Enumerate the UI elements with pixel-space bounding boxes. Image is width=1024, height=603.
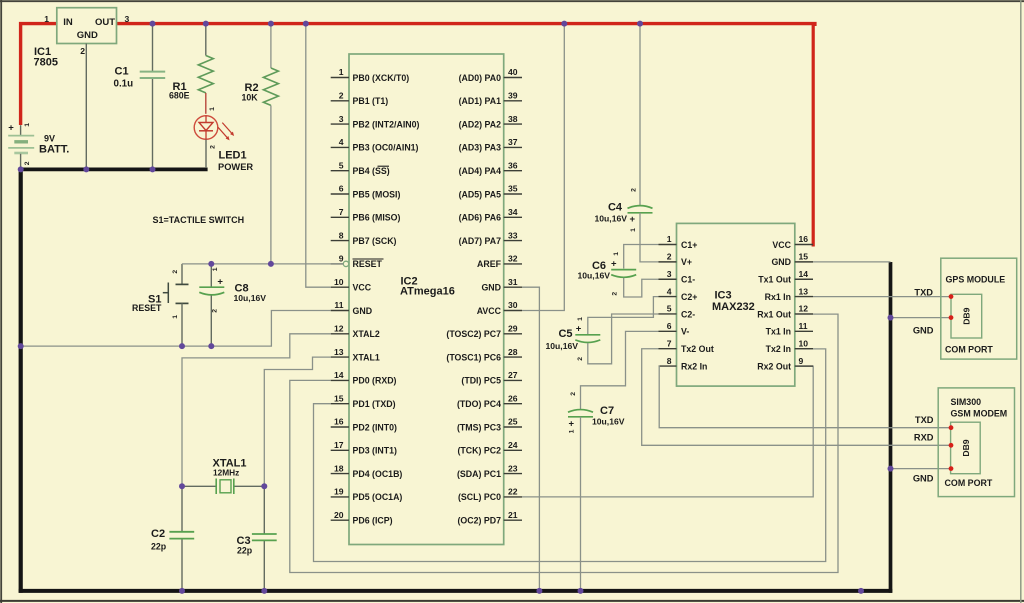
svg-text:10: 10: [334, 277, 344, 287]
svg-text:(AD5) PA5: (AD5) PA5: [459, 189, 501, 199]
svg-text:V-: V-: [681, 327, 689, 337]
svg-text:PD0 (RXD): PD0 (RXD): [353, 376, 397, 386]
svg-text:PB0 (XCK/T0): PB0 (XCK/T0): [353, 73, 410, 83]
svg-text:1: 1: [209, 107, 216, 111]
svg-text:18: 18: [334, 463, 344, 473]
svg-text:13: 13: [799, 286, 809, 296]
svg-text:PD3 (INT1): PD3 (INT1): [353, 446, 398, 456]
svg-text:(TCK) PC2: (TCK) PC2: [458, 446, 502, 456]
svg-text:9: 9: [799, 356, 804, 366]
svg-text:22: 22: [508, 487, 518, 497]
svg-text:C1: C1: [115, 66, 129, 78]
svg-text:0.1u: 0.1u: [114, 79, 134, 90]
svg-text:6: 6: [339, 184, 344, 194]
svg-text:36: 36: [508, 160, 518, 170]
svg-text:10u,16V: 10u,16V: [546, 341, 579, 351]
svg-text:2: 2: [80, 46, 85, 56]
svg-text:PD4 (OC1B): PD4 (OC1B): [353, 469, 403, 479]
svg-text:PB6 (MISO): PB6 (MISO): [353, 213, 401, 223]
svg-text:C5: C5: [558, 328, 572, 340]
svg-text:+: +: [630, 214, 636, 225]
svg-text:S1=TACTILE SWITCH: S1=TACTILE SWITCH: [153, 215, 245, 225]
svg-text:16: 16: [334, 417, 344, 427]
svg-text:17: 17: [334, 440, 344, 450]
svg-text:23: 23: [508, 463, 518, 473]
svg-text:7: 7: [667, 338, 672, 348]
svg-text:SIM300: SIM300: [951, 397, 982, 407]
svg-text:GPS MODULE: GPS MODULE: [946, 274, 1006, 284]
svg-text:DB9: DB9: [961, 439, 971, 456]
svg-text:1: 1: [577, 317, 584, 321]
svg-text:GSM MODEM: GSM MODEM: [951, 409, 1008, 419]
svg-text:27: 27: [508, 370, 518, 380]
svg-text:1: 1: [172, 315, 179, 319]
svg-text:Tx2 Out: Tx2 Out: [681, 344, 714, 354]
svg-text:30: 30: [508, 300, 518, 310]
svg-text:2: 2: [612, 292, 619, 296]
svg-text:GND: GND: [913, 326, 934, 336]
svg-text:9: 9: [339, 254, 344, 264]
svg-text:5: 5: [667, 304, 672, 314]
svg-text:10u,16V: 10u,16V: [578, 271, 611, 281]
svg-text:14: 14: [799, 269, 809, 279]
svg-text:RESET: RESET: [353, 259, 383, 269]
svg-text:Rx1 In: Rx1 In: [765, 292, 791, 302]
svg-text:24: 24: [508, 440, 518, 450]
svg-text:40: 40: [508, 67, 518, 77]
svg-text:38: 38: [508, 114, 518, 124]
svg-text:Rx2 In: Rx2 In: [681, 361, 707, 371]
svg-text:22p: 22p: [237, 546, 253, 556]
svg-text:1: 1: [212, 267, 219, 271]
svg-text:2: 2: [211, 309, 218, 313]
svg-text:AVCC: AVCC: [477, 306, 502, 316]
svg-text:3: 3: [667, 269, 672, 279]
svg-text:XTAL2: XTAL2: [353, 329, 380, 339]
svg-text:10K: 10K: [242, 93, 259, 103]
svg-text:PD5 (OC1A): PD5 (OC1A): [353, 492, 403, 502]
svg-text:OUT: OUT: [95, 17, 115, 28]
svg-text:(AD3) PA3: (AD3) PA3: [459, 143, 501, 153]
svg-text:+: +: [576, 323, 582, 334]
svg-text:(AD1) PA1: (AD1) PA1: [459, 96, 501, 106]
svg-text:Tx1 Out: Tx1 Out: [758, 275, 791, 285]
svg-text:6: 6: [667, 321, 672, 331]
svg-text:32: 32: [508, 254, 518, 264]
svg-text:RXD: RXD: [914, 432, 934, 442]
svg-text:7805: 7805: [34, 57, 58, 69]
svg-text:C1-: C1-: [681, 275, 695, 285]
svg-text:2: 2: [209, 145, 216, 149]
svg-text:2: 2: [570, 392, 577, 396]
svg-text:Tx2 In: Tx2 In: [766, 344, 791, 354]
svg-text:VCC: VCC: [353, 283, 372, 293]
svg-text:PD1 (TXD): PD1 (TXD): [353, 399, 396, 409]
svg-text:PD2 (INT0): PD2 (INT0): [353, 422, 398, 432]
svg-text:TXD: TXD: [915, 415, 934, 425]
svg-text:2: 2: [631, 188, 638, 192]
svg-text:GND: GND: [771, 257, 791, 267]
svg-text:4: 4: [339, 137, 344, 147]
svg-text:GND: GND: [77, 30, 98, 41]
svg-text:LED1: LED1: [219, 150, 247, 162]
svg-text:2: 2: [339, 91, 344, 101]
svg-text:V+: V+: [681, 257, 692, 267]
svg-text:1: 1: [339, 67, 344, 77]
svg-text:(OC2) PD7: (OC2) PD7: [457, 516, 501, 526]
svg-text:Tx1 In: Tx1 In: [766, 327, 791, 337]
svg-text:8: 8: [339, 230, 344, 240]
svg-text:C4: C4: [608, 202, 623, 214]
svg-text:11: 11: [334, 300, 343, 310]
svg-text:C7: C7: [600, 405, 614, 417]
svg-text:AREF: AREF: [477, 259, 502, 269]
svg-text:+: +: [217, 277, 223, 288]
svg-text:1: 1: [44, 14, 49, 24]
svg-text:12: 12: [799, 304, 809, 314]
svg-text:(AD2) PA2: (AD2) PA2: [459, 119, 501, 129]
svg-text:IN: IN: [63, 17, 73, 28]
svg-text:3: 3: [125, 14, 130, 24]
svg-text:(TOSC1) PC6: (TOSC1) PC6: [446, 352, 501, 362]
svg-text:POWER: POWER: [218, 162, 253, 172]
svg-text:PB5 (MOSI): PB5 (MOSI): [353, 189, 401, 199]
svg-text:PB1 (T1): PB1 (T1): [353, 96, 389, 106]
svg-text:2: 2: [24, 161, 31, 165]
svg-text:(SDA) PC1: (SDA) PC1: [457, 469, 501, 479]
svg-text:1: 1: [667, 234, 672, 244]
svg-text:1: 1: [613, 252, 620, 256]
svg-text:C2+: C2+: [681, 292, 697, 302]
svg-text:C2: C2: [151, 528, 165, 540]
svg-text:RESET: RESET: [132, 303, 162, 313]
svg-text:(TMS) PC3: (TMS) PC3: [457, 422, 501, 432]
svg-text:PB2 (INT2/AIN0): PB2 (INT2/AIN0): [353, 119, 420, 129]
svg-text:2: 2: [667, 252, 672, 262]
svg-text:2: 2: [577, 357, 584, 361]
svg-text:16: 16: [799, 234, 809, 244]
svg-text:8: 8: [667, 356, 672, 366]
svg-text:TXD: TXD: [914, 287, 933, 297]
svg-text:1: 1: [569, 429, 576, 433]
svg-text:10u,16V: 10u,16V: [592, 417, 625, 427]
svg-text:10u,16V: 10u,16V: [595, 214, 628, 224]
svg-text:35: 35: [508, 184, 518, 194]
svg-text:21: 21: [508, 510, 518, 520]
svg-text:15: 15: [334, 393, 344, 403]
svg-text:7: 7: [339, 207, 344, 217]
svg-text:PB3 (OC0/AIN1): PB3 (OC0/AIN1): [353, 143, 419, 153]
svg-text:22p: 22p: [151, 542, 167, 552]
svg-text:PD6 (ICP): PD6 (ICP): [353, 516, 393, 526]
svg-text:33: 33: [508, 230, 518, 240]
svg-text:10: 10: [799, 338, 809, 348]
svg-text:XTAL1: XTAL1: [353, 352, 380, 362]
svg-text:26: 26: [508, 393, 518, 403]
svg-text:12: 12: [334, 324, 344, 334]
svg-text:+: +: [569, 418, 575, 429]
svg-text:3: 3: [339, 114, 344, 124]
svg-text:GND: GND: [481, 283, 501, 293]
svg-text:+: +: [8, 122, 14, 133]
svg-text:MAX232: MAX232: [712, 301, 755, 313]
svg-text:11: 11: [799, 321, 808, 331]
svg-text:25: 25: [508, 417, 518, 427]
svg-text:(TOSC2) PC7: (TOSC2) PC7: [446, 329, 501, 339]
svg-text:+: +: [611, 258, 617, 269]
svg-text:Rx1 Out: Rx1 Out: [757, 309, 791, 319]
svg-text:Rx2 Out: Rx2 Out: [757, 361, 791, 371]
svg-text:IC3: IC3: [715, 290, 732, 302]
svg-text:(AD6) PA6: (AD6) PA6: [459, 213, 501, 223]
svg-text:13: 13: [334, 347, 344, 357]
svg-text:28: 28: [508, 347, 518, 357]
svg-text:C1+: C1+: [681, 240, 697, 250]
svg-text:ATmega16: ATmega16: [400, 286, 455, 298]
svg-text:C2-: C2-: [681, 309, 695, 319]
svg-text:GND: GND: [913, 473, 934, 483]
svg-text:20: 20: [334, 510, 344, 520]
svg-text:34: 34: [508, 207, 518, 217]
svg-text:(AD7) PA7: (AD7) PA7: [459, 236, 501, 246]
svg-text:(TDO) PC4: (TDO) PC4: [457, 399, 501, 409]
svg-text:29: 29: [508, 324, 518, 334]
svg-text:1: 1: [24, 123, 31, 127]
svg-text:GND: GND: [353, 306, 373, 316]
svg-text:10u,16V: 10u,16V: [234, 293, 267, 303]
svg-text:15: 15: [799, 252, 809, 262]
svg-text:(AD0) PA0: (AD0) PA0: [459, 73, 501, 83]
svg-text:1: 1: [630, 228, 637, 232]
svg-text:37: 37: [508, 137, 518, 147]
svg-text:BATT.: BATT.: [39, 144, 69, 156]
svg-text:PB7 (SCK): PB7 (SCK): [353, 236, 397, 246]
svg-text:PB4 (SS): PB4 (SS): [353, 166, 390, 176]
svg-text:12MHz: 12MHz: [213, 467, 239, 477]
svg-text:14: 14: [334, 370, 344, 380]
svg-text:4: 4: [667, 286, 672, 296]
svg-text:9V: 9V: [44, 134, 55, 144]
svg-text:COM PORT: COM PORT: [945, 478, 993, 488]
svg-text:680E: 680E: [169, 91, 190, 101]
svg-text:5: 5: [339, 160, 344, 170]
svg-text:19: 19: [334, 487, 344, 497]
svg-text:(AD4) PA4: (AD4) PA4: [459, 166, 501, 176]
svg-text:DB9: DB9: [962, 307, 972, 324]
svg-text:(TDI) PC5: (TDI) PC5: [461, 376, 501, 386]
svg-text:VCC: VCC: [772, 240, 791, 250]
svg-text:39: 39: [508, 91, 518, 101]
svg-text:(SCL) PC0: (SCL) PC0: [458, 492, 501, 502]
svg-text:COM PORT: COM PORT: [945, 344, 993, 354]
svg-text:31: 31: [508, 277, 518, 287]
svg-text:2: 2: [172, 270, 179, 274]
